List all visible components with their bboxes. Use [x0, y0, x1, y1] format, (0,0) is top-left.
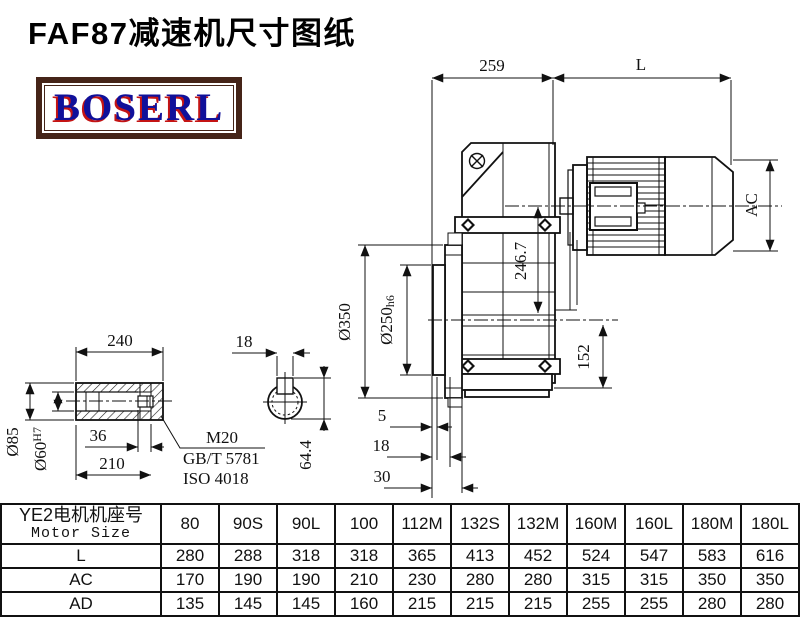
dimension-value-cell: 160 [335, 592, 393, 616]
dim-5: 5 [378, 406, 387, 425]
dim-L: L [636, 55, 646, 74]
frame-size-column-header: 132S [451, 504, 509, 544]
hollow-shaft-section-view [66, 383, 172, 420]
dimension-value-cell: 280 [509, 568, 567, 592]
dim-250h6: Ø250h6 [377, 295, 397, 345]
dimension-value-cell: 350 [683, 568, 741, 592]
frame-size-column-header: 180M [683, 504, 741, 544]
top-dimension-lines [432, 78, 731, 498]
dimension-value-cell: 210 [335, 568, 393, 592]
dimension-row-label: AD [1, 592, 161, 616]
frame-size-column-header: 90L [277, 504, 335, 544]
dimension-value-cell: 452 [509, 544, 567, 568]
dimension-value-cell: 215 [393, 592, 451, 616]
dimension-value-cell: 135 [161, 592, 219, 616]
bolt-symbol-icon [470, 154, 485, 169]
label-gbt-5781: GB/T 5781 [183, 449, 260, 468]
motor-size-table: YE2电机机座号Motor Size8090S90L100112M132S132… [0, 503, 800, 617]
dimension-value-cell: 288 [219, 544, 277, 568]
motor-size-header-en: Motor Size [2, 525, 160, 542]
dim-246-7: 246.7 [511, 241, 530, 280]
dimension-value-cell: 215 [451, 592, 509, 616]
dimension-value-cell: 318 [277, 544, 335, 568]
label-M20: M20 [206, 428, 238, 447]
frame-size-column-header: 180L [741, 504, 799, 544]
frame-size-column-header: 100 [335, 504, 393, 544]
dimension-row-label: AC [1, 568, 161, 592]
dimension-value-cell: 255 [567, 592, 625, 616]
frame-size-column-header: 90S [219, 504, 277, 544]
dimension-value-cell: 280 [683, 592, 741, 616]
dimension-value-cell: 145 [277, 592, 335, 616]
dimension-value-cell: 190 [219, 568, 277, 592]
dim-18-keyway: 18 [236, 332, 253, 351]
dimension-value-cell: 255 [625, 592, 683, 616]
dimension-value-cell: 315 [567, 568, 625, 592]
dimension-value-cell: 315 [625, 568, 683, 592]
dimension-labels: 259 L AC 246.7 Ø350 Ø250h6 152 5 18 30 2… [3, 55, 761, 488]
technical-drawing: 259 L AC 246.7 Ø350 Ø250h6 152 5 18 30 2… [0, 0, 800, 503]
frame-size-column-header: 132M [509, 504, 567, 544]
page: { "title": "FAF87减速机尺寸图纸", "logo": { "te… [0, 0, 800, 614]
frame-size-column-header: 160L [625, 504, 683, 544]
dimension-row-label: L [1, 544, 161, 568]
dimension-value-cell: 280 [451, 568, 509, 592]
motor-size-table-body: YE2电机机座号Motor Size8090S90L100112M132S132… [1, 504, 799, 616]
dimension-value-cell: 190 [277, 568, 335, 592]
dim-152: 152 [574, 344, 593, 370]
dimension-value-cell: 215 [509, 592, 567, 616]
label-iso-4018: ISO 4018 [183, 469, 249, 488]
dimension-value-cell: 170 [161, 568, 219, 592]
dim-259: 259 [479, 56, 505, 75]
frame-size-column-header: 112M [393, 504, 451, 544]
dim-AC: AC [742, 193, 761, 217]
dimension-row: AD135145145160215215215255255280280 [1, 592, 799, 616]
dimension-value-cell: 145 [219, 592, 277, 616]
frame-size-column-header: 160M [567, 504, 625, 544]
dimension-row: L280288318318365413452524547583616 [1, 544, 799, 568]
motor-size-header-cell: YE2电机机座号Motor Size [1, 504, 161, 544]
dim-36: 36 [90, 426, 107, 445]
dimension-value-cell: 365 [393, 544, 451, 568]
dimension-value-cell: 350 [741, 568, 799, 592]
dimension-value-cell: 230 [393, 568, 451, 592]
frame-size-column-header: 80 [161, 504, 219, 544]
dimension-value-cell: 583 [683, 544, 741, 568]
shaft-keyway-section-view [263, 372, 307, 424]
dim-85: Ø85 [3, 427, 22, 456]
dimension-value-cell: 524 [567, 544, 625, 568]
dimension-value-cell: 318 [335, 544, 393, 568]
dim-30: 30 [374, 467, 391, 486]
dim-240: 240 [107, 331, 133, 350]
dim-210: 210 [99, 454, 125, 473]
dimension-value-cell: 547 [625, 544, 683, 568]
gearbox-main-view [428, 78, 782, 498]
dim-350: Ø350 [335, 303, 354, 341]
dimension-value-cell: 280 [161, 544, 219, 568]
dim-60H7: Ø60H7 [30, 427, 50, 471]
dimension-value-cell: 413 [451, 544, 509, 568]
dim-64-4: 64.4 [296, 440, 315, 470]
dimension-row: AC170190190210230280280315315350350 [1, 568, 799, 592]
dimension-value-cell: 280 [741, 592, 799, 616]
motor-size-header-cn: YE2电机机座号 [2, 506, 160, 525]
dimension-value-cell: 616 [741, 544, 799, 568]
dim-18-face: 18 [373, 436, 390, 455]
